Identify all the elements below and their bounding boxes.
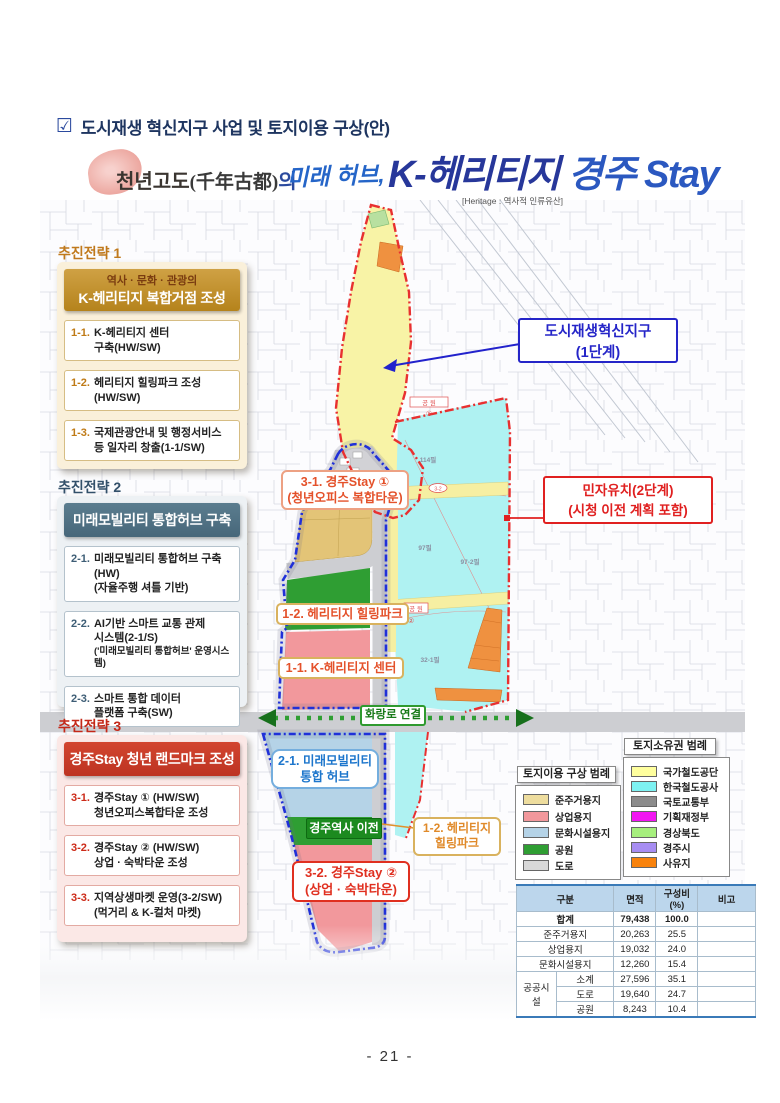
item-number: 2-2. [71, 617, 90, 632]
item-text: K-헤리티지 센터구축(HW/SW) [94, 326, 169, 355]
item-number: 1-2. [71, 376, 90, 391]
page-title: ☑ 도시재생 혁신지구 사업 및 토지이용 구상(안) [56, 114, 390, 139]
strategy2-panel: 미래모빌리티 통합허브 구축 2-1. 미래모빌리티 통합허브 구축(HW)(자… [57, 496, 247, 707]
swatch [523, 827, 549, 838]
item-number: 3-3. [71, 891, 90, 906]
callout-phase1: 도시재생혁신지구 (1단계) [518, 318, 678, 363]
table-header-row: 구분 면적 구성비(%) 비고 [517, 885, 756, 912]
svg-text:3-2: 3-2 [434, 487, 441, 493]
zone-private-bottom [435, 688, 502, 702]
swatch [523, 844, 549, 855]
swatch [631, 796, 657, 807]
table-row: 상업용지19,03224.0 [517, 942, 756, 957]
col-group: 구분 [517, 885, 614, 912]
legend-row: 한국철도공사 [631, 779, 722, 794]
legend-row: 경주시 [631, 840, 722, 855]
logo-text: K-헤리티지 경주 Stay [388, 143, 718, 198]
road-number-badge: 3-2 [429, 484, 447, 493]
item-text: 경주Stay ② (HW/SW)상업 · 숙박타운 조성 [94, 841, 199, 870]
callout-phase2: 민자유치(2단계) (시청 이전 계획 포함) [543, 476, 713, 524]
callout-phase2-line2: (시청 이전 계획 포함) [568, 503, 688, 518]
legend-row: 문화시설용지 [523, 825, 613, 840]
legend-row: 국가철도공단 [631, 764, 722, 779]
swatch [631, 811, 657, 822]
page-title-text: 도시재생 혁신지구 사업 및 토지이용 구상(안) [81, 114, 390, 139]
swatch [523, 794, 549, 805]
item-number: 3-2. [71, 841, 90, 856]
legend-row: 경상북도 [631, 825, 722, 840]
table-row: 준주거용지20,26325.5 [517, 927, 756, 942]
brand-korean: 천년고도 [116, 171, 190, 193]
swatch [523, 811, 549, 822]
map-label-station-move: 경주역사 이전 [306, 818, 382, 839]
item-number: 1-3. [71, 426, 90, 441]
legend-ownership: 국가철도공단 한국철도공사 국토교통부 기획재정부 경상북도 경주시 사유지 [623, 757, 730, 877]
strategy3-item-2: 3-2. 경주Stay ② (HW/SW)상업 · 숙박타운 조성 [64, 835, 240, 876]
strategy1-header-main: K-헤리티지 복합거점 조성 [66, 288, 238, 308]
legend-landuse: 준주거용지 상업용지 문화시설용지 공원 도로 [515, 785, 621, 880]
strategy2-item-1: 2-1. 미래모빌리티 통합허브 구축(HW)(자율주행 셔틀 기반) [64, 546, 240, 602]
callout-phase1-line1: 도시재생혁신지구 [545, 324, 652, 340]
logo-k-heritage: K-헤리티지 [388, 154, 559, 196]
callout-phase2-line1: 민자유치(2단계) [582, 483, 673, 498]
public-group-cell: 공공시설 [517, 972, 557, 1018]
svg-text:32-1필: 32-1필 [421, 655, 440, 664]
strategy3-item-1: 3-1. 경주Stay ① (HW/SW)청년오피스복합타운 조성 [64, 785, 240, 826]
tagline-text: 미래 허브, [286, 155, 385, 192]
swatch [631, 842, 657, 853]
map-label-hwangno-link: 화랑로 연결 [360, 705, 426, 726]
item-number: 2-3. [71, 692, 90, 707]
legend-row: 상업용지 [523, 809, 613, 824]
map-label-stay1: 3-1. 경주Stay ①(청년오피스 복합타운) [281, 470, 409, 510]
legend-ownership-title: 토지소유권 범례 [624, 738, 716, 755]
item-text: 헤리티지 힐링파크 조성(HW/SW) [94, 376, 233, 405]
svg-text:공 원: 공 원 [422, 398, 436, 407]
map-label-healing-park: 1-2. 헤리티지 힐링파크 [276, 603, 409, 625]
strategy3-label: 추진전략 3 [58, 716, 121, 736]
heritage-note: [Heritage : 역사적 인류유산] [462, 195, 563, 207]
swatch [631, 827, 657, 838]
col-area: 면적 [614, 885, 656, 912]
page-number: - 21 - [0, 1048, 780, 1065]
svg-text:①: ① [426, 410, 432, 418]
strategy1-panel: 역사 · 문화 · 관광의 K-헤리티지 복합거점 조성 1-1. K-헤리티지… [57, 262, 247, 469]
map-label-heritage-center: 1-1. K-헤리티지 센터 [278, 657, 404, 679]
strategy1-header-sub: 역사 · 문화 · 관광의 [66, 272, 238, 288]
callout-phase1-line2: (1단계) [576, 345, 620, 361]
legend-row: 도로 [523, 858, 613, 873]
phase2-connector-end [504, 515, 510, 521]
swatch [523, 860, 549, 871]
area-table: 구분 면적 구성비(%) 비고 합계79,438100.0 준주거용지20,26… [516, 884, 756, 1018]
svg-text:97필: 97필 [418, 543, 431, 552]
col-ratio: 구성비(%) [656, 885, 698, 912]
swatch [631, 766, 657, 777]
svg-text:114필: 114필 [420, 455, 436, 464]
strategy2-header-main: 미래모빌리티 통합허브 구축 [66, 510, 238, 530]
strategy1-item-3: 1-3. 국제관광안내 및 행정서비스등 일자리 창출(1-1/SW) [64, 420, 240, 461]
item-text: 경주Stay ① (HW/SW)청년오피스복합타운 조성 [94, 791, 208, 820]
swatch [631, 781, 657, 792]
strategy2-label: 추진전략 2 [58, 477, 121, 497]
svg-text:공 원: 공 원 [409, 604, 423, 613]
map-label-healing-park2: 1-2. 헤리티지힐링파크 [413, 817, 501, 856]
map-label-mobility-hub: 2-1. 미래모빌리티통합 허브 [271, 749, 379, 789]
item-number: 3-1. [71, 791, 90, 806]
strategy2-item-2: 2-2. AI기반 스마트 교통 관제시스템(2-1/S)('미래모빌리티 통합… [64, 611, 240, 677]
col-note: 비고 [698, 885, 756, 912]
strategy3-panel: 경주Stay 청년 랜드마크 조성 3-1. 경주Stay ① (HW/SW)청… [57, 735, 247, 942]
item-number: 2-1. [71, 552, 90, 567]
checkbox-icon: ☑ [56, 117, 73, 136]
swatch [631, 857, 657, 868]
item-text: 국제관광안내 및 행정서비스등 일자리 창출(1-1/SW) [94, 426, 222, 455]
logo-gyeongju-stay: 경주 Stay [568, 154, 718, 196]
strategy1-item-2: 1-2. 헤리티지 힐링파크 조성(HW/SW) [64, 370, 240, 411]
item-text: AI기반 스마트 교통 관제시스템(2-1/S)('미래모빌리티 통합허브' 운… [94, 617, 233, 671]
item-text: 지역상생마켓 운영(3-2/SW)(먹거리 & K-컬처 마켓) [94, 891, 222, 920]
item-text: 미래모빌리티 통합허브 구축(HW)(자율주행 셔틀 기반) [94, 552, 233, 596]
strategy3-header: 경주Stay 청년 랜드마크 조성 [64, 742, 240, 776]
legend-row: 공원 [523, 842, 613, 857]
strategy3-header-main: 경주Stay 청년 랜드마크 조성 [66, 749, 238, 769]
table-row: 문화시설용지12,26015.4 [517, 957, 756, 972]
strategy1-label: 추진전략 1 [58, 243, 121, 263]
brand-hanja: (千年古都) [190, 172, 279, 193]
legend-landuse-title: 토지이용 구상 범례 [517, 766, 616, 783]
strategy3-item-3: 3-3. 지역상생마켓 운영(3-2/SW)(먹거리 & K-컬처 마켓) [64, 885, 240, 926]
legend-row: 국토교통부 [631, 794, 722, 809]
strategy2-header: 미래모빌리티 통합허브 구축 [64, 503, 240, 537]
brand-text: 천년고도(千年古都)의 [116, 165, 297, 194]
table-row-total: 합계79,438100.0 [517, 912, 756, 927]
map-label-stay2: 3-2. 경주Stay ②(상업 · 숙박타운) [292, 861, 410, 902]
svg-text:97-2필: 97-2필 [461, 557, 480, 566]
legend-row: 사유지 [631, 855, 722, 870]
strategy1-header: 역사 · 문화 · 관광의 K-헤리티지 복합거점 조성 [64, 269, 240, 311]
strategy1-item-1: 1-1. K-헤리티지 센터구축(HW/SW) [64, 320, 240, 361]
item-number: 1-1. [71, 326, 90, 341]
table-row: 공공시설 소계27,59635.1 [517, 972, 756, 987]
legend-row: 기획재정부 [631, 809, 722, 824]
legend-row: 준주거용지 [523, 792, 613, 807]
